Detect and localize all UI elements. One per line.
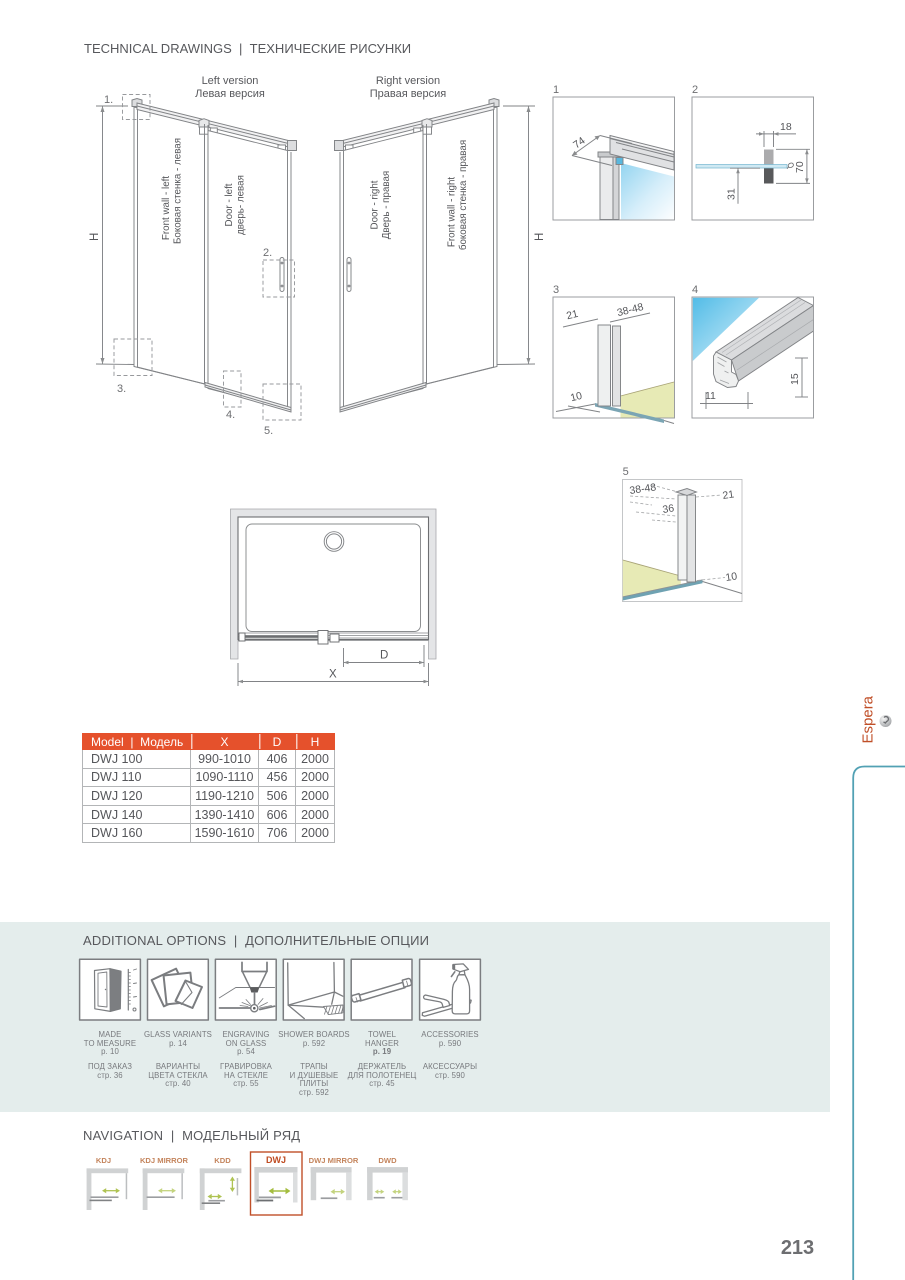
svg-text:38-48: 38-48	[629, 481, 657, 497]
svg-text:Front wall - left: Front wall - left	[161, 176, 172, 241]
svg-text:74: 74	[571, 135, 588, 152]
svg-text:D: D	[380, 650, 388, 662]
svg-text:DWJ MIRROR: DWJ MIRROR	[309, 1156, 359, 1165]
svg-text:Боковая стенка - левая: Боковая стенка - левая	[173, 138, 184, 244]
svg-text:5: 5	[623, 466, 629, 478]
svg-text:H: H	[89, 233, 101, 241]
svg-text:дверь- левая: дверь- левая	[236, 175, 247, 235]
svg-text:31: 31	[726, 188, 738, 200]
svg-text:DWD: DWD	[378, 1156, 397, 1165]
svg-text:боковая стенка - правая: боковая стенка - правая	[458, 140, 469, 250]
svg-text:70: 70	[794, 161, 806, 173]
svg-text:10: 10	[569, 390, 583, 405]
svg-text:36: 36	[662, 502, 675, 516]
svg-text:4: 4	[692, 284, 698, 296]
svg-text:18: 18	[780, 121, 792, 133]
svg-text:DWJ: DWJ	[266, 1155, 286, 1165]
svg-text:KDJ: KDJ	[96, 1156, 111, 1165]
svg-text:21: 21	[565, 308, 579, 323]
svg-text:1: 1	[553, 84, 559, 96]
svg-text:10: 10	[725, 570, 738, 584]
svg-text:Espera: Espera	[860, 695, 877, 743]
svg-text:38-48: 38-48	[616, 301, 645, 319]
svg-text:KDD: KDD	[214, 1156, 231, 1165]
svg-text:15: 15	[789, 373, 801, 385]
svg-text:X: X	[329, 669, 337, 681]
svg-text:3: 3	[553, 284, 559, 296]
svg-text:5.: 5.	[264, 425, 273, 437]
svg-text:3.: 3.	[117, 383, 126, 395]
svg-text:2: 2	[692, 84, 698, 96]
svg-text:Front wall - right: Front wall - right	[447, 177, 458, 248]
svg-text:Door - left: Door - left	[224, 183, 235, 226]
svg-text:4.: 4.	[226, 409, 235, 421]
svg-text:21: 21	[722, 488, 735, 502]
svg-text:H: H	[534, 233, 546, 241]
svg-text:1.: 1.	[104, 94, 113, 106]
svg-text:11: 11	[705, 390, 716, 402]
svg-text:Дверь - правая: Дверь - правая	[381, 171, 392, 240]
svg-text:Door - right: Door - right	[370, 180, 381, 229]
svg-text:KDJ MIRROR: KDJ MIRROR	[140, 1156, 189, 1165]
svg-text:2.: 2.	[263, 247, 272, 259]
